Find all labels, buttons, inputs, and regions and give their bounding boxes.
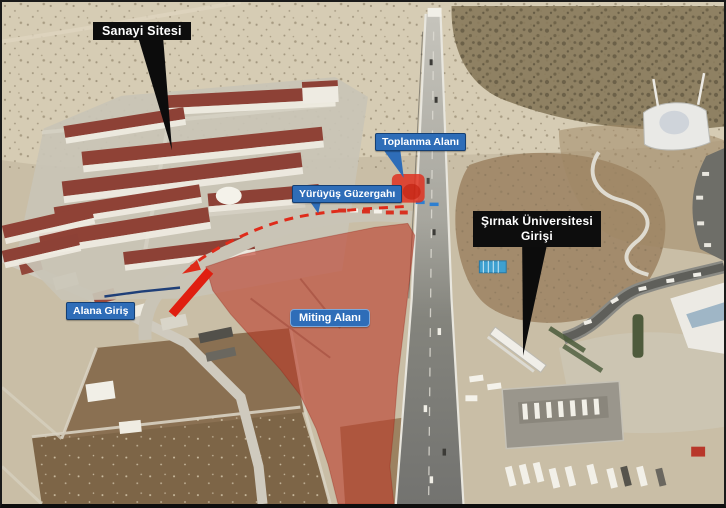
callout-sirnak-line1: Şırnak Üniversitesi — [481, 214, 593, 229]
red-container — [691, 447, 705, 457]
callout-miting-alani: Miting Alanı — [290, 309, 370, 327]
callout-sirnak-line2: Girişi — [521, 229, 553, 244]
annotated-aerial-photo: Sanayi Sitesi Toplanma Alanı Yürüyüş Güz… — [0, 0, 726, 508]
callout-sanayi-sitesi: Sanayi Sitesi — [93, 22, 191, 40]
service-building — [502, 381, 623, 448]
callout-toplanma-alani: Toplanma Alanı — [375, 133, 466, 151]
dome-tent — [216, 187, 242, 205]
callout-yuruyus-guzergahi: Yürüyüş Güzergahı — [292, 185, 402, 203]
callout-alana-giris: Alana Giriş — [66, 302, 135, 320]
tree-row — [633, 314, 644, 357]
blue-roof-shed — [479, 261, 506, 273]
callout-sirnak-universitesi-girisi: Şırnak Üniversitesi Girişi — [473, 211, 601, 247]
road-top-structure — [428, 8, 442, 17]
aerial-scene — [2, 2, 724, 504]
